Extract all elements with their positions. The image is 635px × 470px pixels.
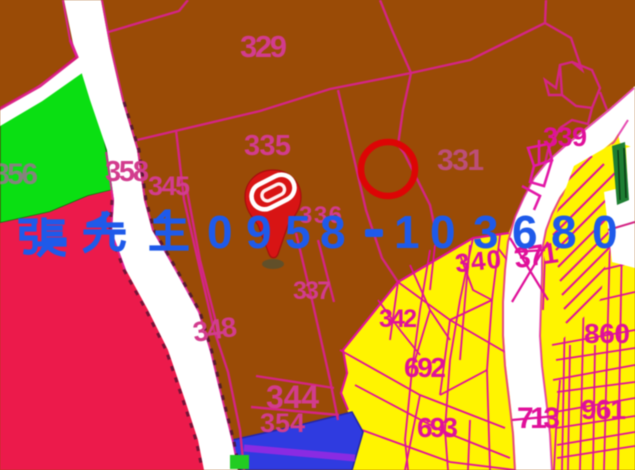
- svg-text:342: 342: [379, 305, 417, 333]
- svg-text:345: 345: [148, 171, 190, 201]
- svg-text:713: 713: [517, 402, 560, 435]
- svg-text:348: 348: [191, 311, 239, 348]
- svg-text:8: 8: [551, 206, 577, 258]
- svg-text:8: 8: [320, 206, 346, 258]
- svg-text:0: 0: [430, 206, 456, 258]
- svg-text:0: 0: [207, 206, 233, 258]
- svg-text:693: 693: [417, 412, 458, 443]
- svg-text:354: 354: [260, 408, 305, 438]
- svg-text:5: 5: [285, 206, 311, 258]
- svg-text:329: 329: [240, 29, 287, 64]
- svg-text:6: 6: [512, 206, 538, 258]
- svg-text:0: 0: [592, 206, 618, 258]
- svg-text:856: 856: [0, 158, 38, 191]
- svg-text:337: 337: [293, 277, 331, 305]
- svg-text:358: 358: [105, 156, 149, 188]
- svg-text:860: 860: [584, 318, 630, 349]
- svg-text:1: 1: [394, 206, 420, 258]
- svg-text:3: 3: [473, 206, 499, 258]
- svg-text:339: 339: [543, 122, 587, 152]
- svg-text:961: 961: [581, 394, 626, 425]
- svg-text:331: 331: [437, 144, 484, 177]
- svg-text:692: 692: [404, 352, 446, 383]
- svg-text:9: 9: [246, 206, 272, 258]
- svg-text:335: 335: [244, 130, 291, 162]
